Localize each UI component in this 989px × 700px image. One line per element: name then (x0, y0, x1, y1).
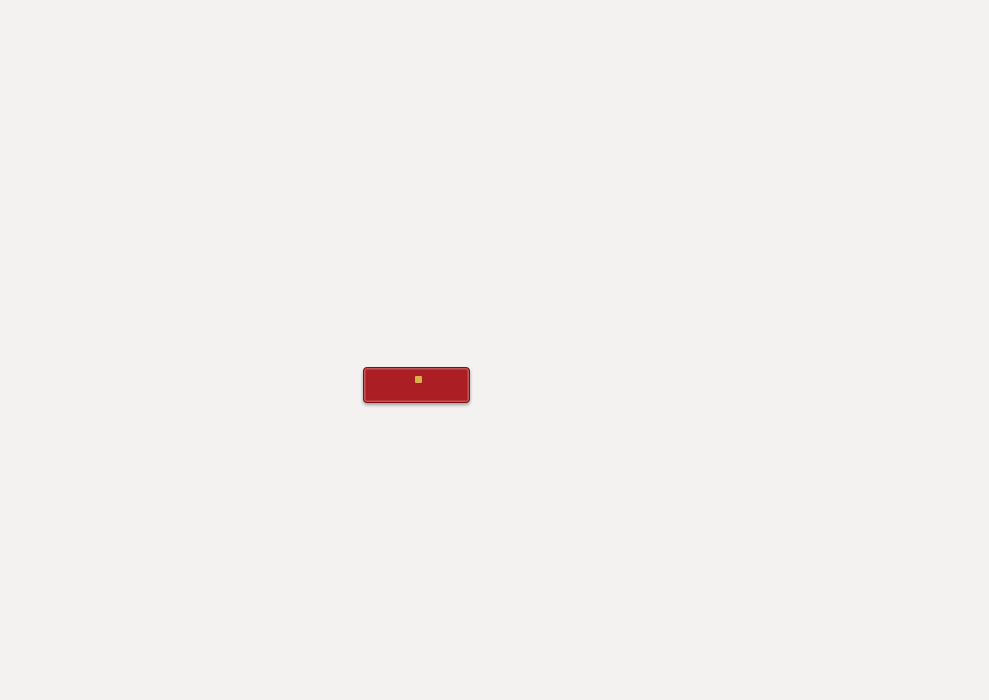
logo-seal-icon (415, 376, 422, 383)
project-logo (363, 367, 470, 403)
map-base-svg (0, 0, 989, 700)
location-map (0, 0, 989, 700)
